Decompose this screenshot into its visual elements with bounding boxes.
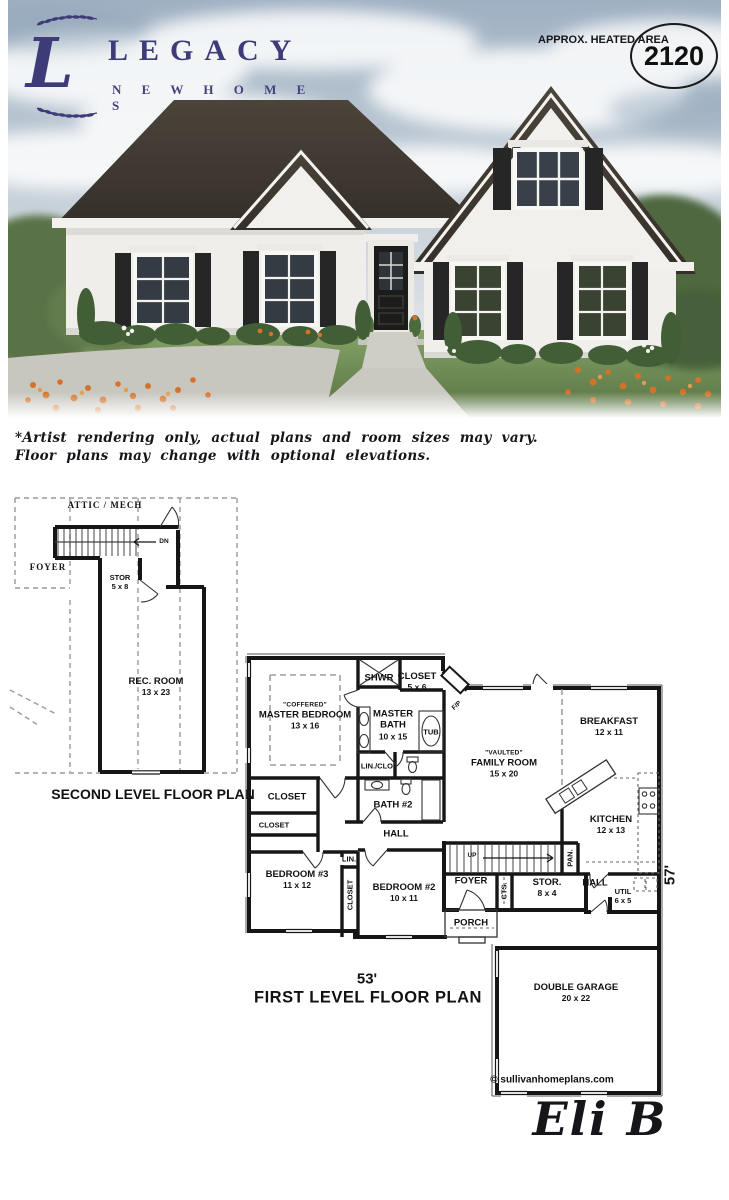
disclaimer-line1: *Artist rendering only, actual plans and… [15, 430, 538, 448]
kitchen-island [546, 760, 616, 813]
fireplace [441, 667, 468, 694]
closet3-label: CLOSET [259, 821, 289, 830]
stairs [450, 845, 555, 872]
lin-clo-label: LIN./CLO. [361, 762, 395, 771]
logo-subbrand: N E W H O M E S [112, 82, 318, 114]
bottom-fade [8, 392, 721, 418]
window-marks [132, 769, 160, 776]
heated-area-value: 2120 [644, 41, 704, 72]
hall2-label: HALL [582, 877, 607, 888]
stair [55, 529, 156, 556]
interior-walls [249, 658, 659, 937]
bedroom3-label: BEDROOM #3 11 x 12 [266, 869, 329, 891]
width-dimension: 53' [357, 971, 377, 988]
rec-room-label: REC. ROOM 13 x 23 [129, 676, 184, 698]
copyright: © sullivanhomeplans.com [490, 1075, 614, 1086]
porch-label: PORCH [454, 917, 488, 928]
bath2-label: BATH #2 [374, 799, 413, 810]
closet2-label: CLOSET [268, 791, 307, 802]
tub-label: TUB [423, 728, 438, 737]
logo-monogram: L [26, 24, 74, 104]
master-bedroom-label: "COFFERED" MASTER BEDROOM 13 x 16 [259, 701, 351, 730]
lin-label: LIN. [342, 855, 356, 864]
foyer2-label: FOYER [30, 562, 67, 572]
hall1-label: HALL [383, 828, 408, 839]
heated-area-badge: 2120 [630, 23, 718, 89]
window-2 [243, 244, 336, 332]
window-4 [557, 255, 648, 345]
shwr-label: SHWR [364, 672, 393, 683]
util-label: UTIL 6 x 5 [615, 887, 632, 905]
family-room-label: "VAULTED" FAMILY ROOM 15 x 20 [471, 749, 537, 778]
closet4-label: CLOSET [346, 880, 355, 910]
first-level-caption: FIRST LEVEL FLOOR PLAN [254, 989, 482, 1008]
bedroom2-label: BEDROOM #2 10 x 11 [373, 882, 436, 904]
dn-label: DN [159, 538, 168, 546]
stor2-label: STOR 5 x 8 [110, 573, 131, 591]
stove [639, 788, 658, 814]
walls [55, 527, 204, 772]
closet1-label: CLOSET 5 x 6 [398, 671, 437, 693]
breakfast-label: BREAKFAST 12 x 11 [580, 716, 638, 738]
plan-sheet: L LEGACY N E W H O M E S APPROX. HEATED … [0, 0, 729, 1200]
pan-label: PAN. [566, 849, 575, 866]
foyer1-label: FOYER [455, 875, 488, 886]
second-level-plan-svg [8, 485, 248, 815]
disclaimer-line2: Floor plans may change with optional ele… [15, 448, 538, 466]
window-1 [115, 246, 211, 332]
upper-window [493, 140, 603, 215]
logo-brand: LEGACY [108, 34, 302, 68]
logo: L LEGACY N E W H O M E S [18, 8, 318, 118]
master-bath-label: MASTER BATH 10 x 15 [367, 709, 419, 742]
stor1-label: STOR. 8 x 4 [533, 877, 562, 899]
laurel-bottom-icon [34, 104, 100, 122]
first-level-plan: "COFFERED" MASTER BEDROOM 13 x 16 SHWR C… [245, 645, 725, 1105]
attic-label: ATTIC / MECH [68, 500, 143, 510]
second-level-caption: SECOND LEVEL FLOOR PLAN [51, 786, 255, 802]
disclaimer: *Artist rendering only, actual plans and… [15, 430, 538, 465]
cts-label: CTS. [500, 882, 509, 899]
plan-name: Eli B [495, 1092, 705, 1146]
up-label: UP [467, 852, 476, 860]
depth-dimension: 57' [662, 865, 679, 885]
garage-label: DOUBLE GARAGE 20 x 22 [534, 982, 618, 1004]
kitchen-label: KITCHEN 12 x 13 [590, 814, 632, 836]
second-level-plan: ATTIC / MECH FOYER DN STOR 5 x 8 REC. RO… [8, 485, 248, 815]
